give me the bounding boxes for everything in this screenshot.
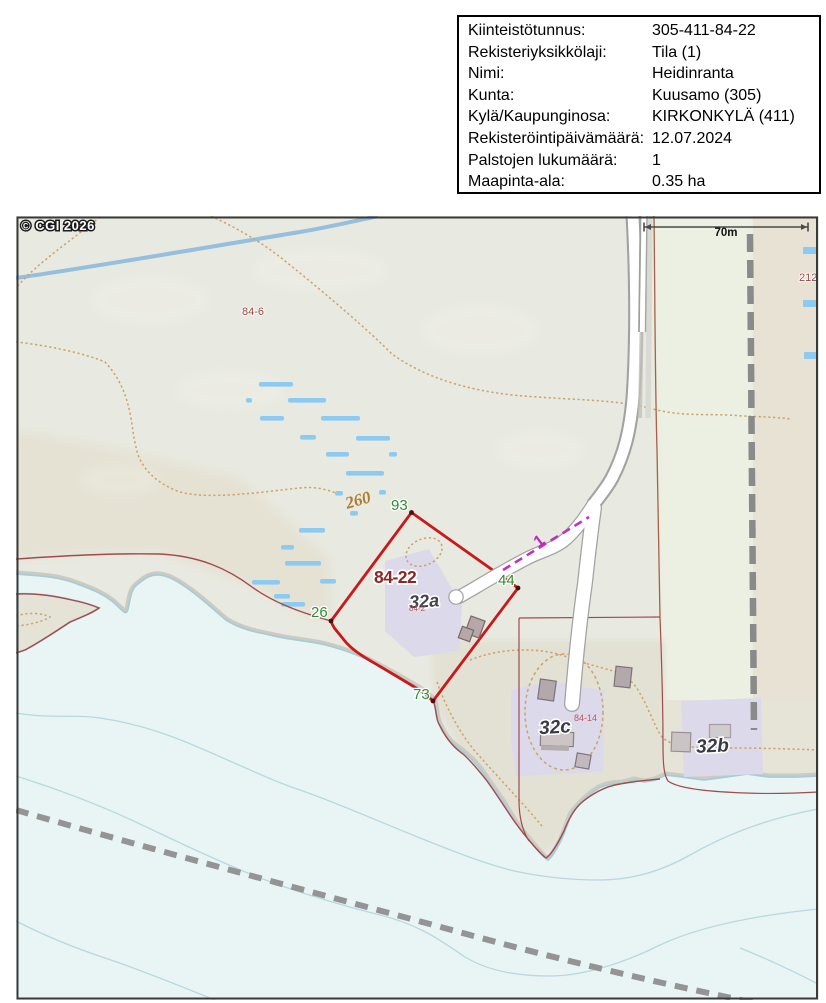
svg-text:84-6: 84-6 (242, 306, 264, 318)
svg-text:70m: 70m (714, 227, 737, 239)
svg-text:44: 44 (498, 572, 515, 589)
svg-text:84-22: 84-22 (374, 567, 417, 587)
svg-text:84-2: 84-2 (409, 604, 426, 613)
svg-text:84-14: 84-14 (574, 713, 597, 723)
svg-text:© CGI 2026: © CGI 2026 (21, 218, 95, 233)
svg-text:26: 26 (311, 604, 328, 621)
svg-text:73: 73 (413, 686, 430, 703)
svg-text:93: 93 (391, 497, 408, 514)
svg-text:212: 212 (799, 272, 817, 284)
svg-text:32b: 32b (696, 735, 730, 758)
svg-text:32c: 32c (538, 716, 572, 739)
